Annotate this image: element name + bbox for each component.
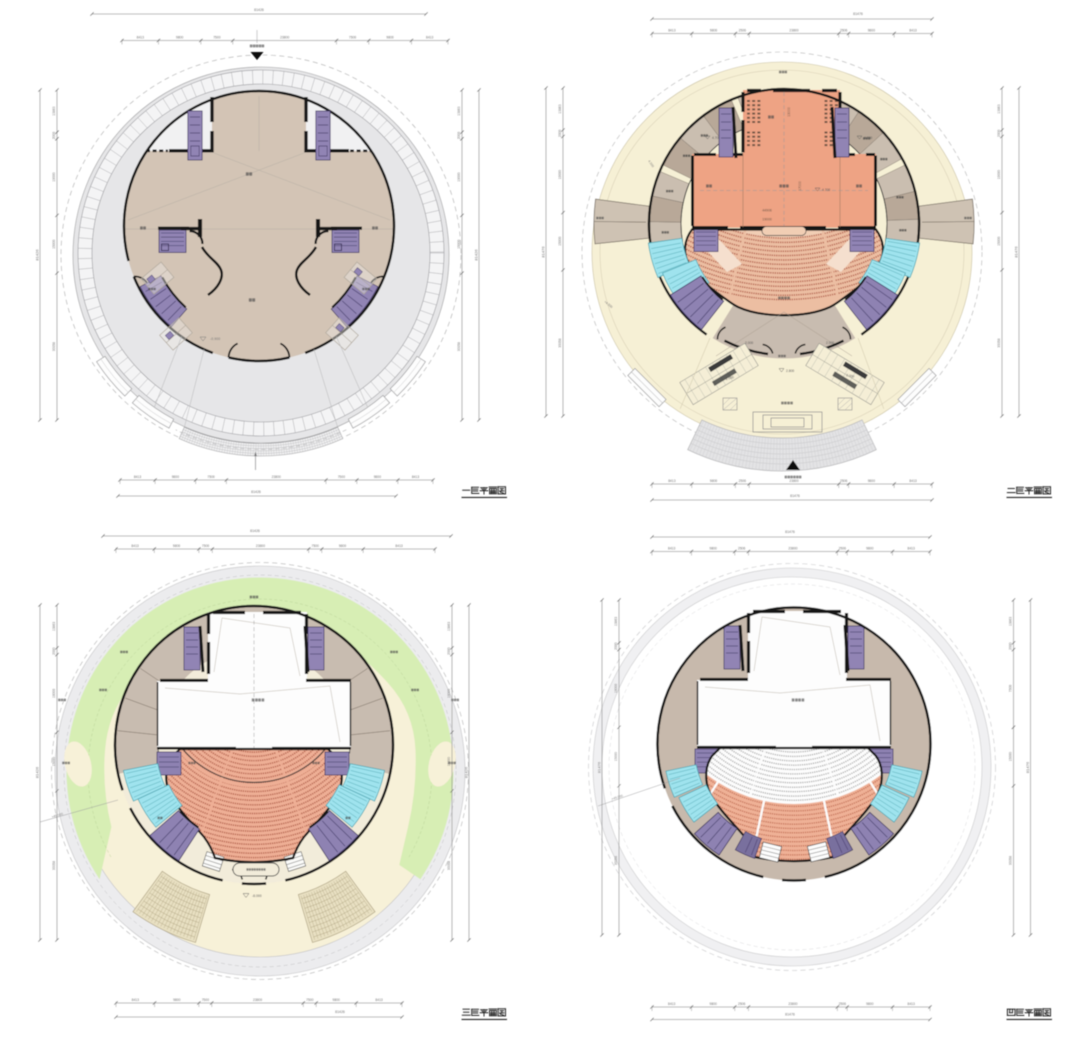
svg-text:7500: 7500 <box>207 475 215 479</box>
svg-text:7500: 7500 <box>202 998 210 1002</box>
svg-text:2000: 2000 <box>558 129 562 137</box>
svg-text:2506: 2506 <box>839 1002 847 1006</box>
svg-text:8413: 8413 <box>134 475 142 479</box>
svg-text:15000: 15000 <box>558 237 562 246</box>
svg-text:81476: 81476 <box>785 1013 795 1017</box>
svg-text:8413: 8413 <box>131 544 139 548</box>
svg-text:81426: 81426 <box>251 490 261 494</box>
svg-text:15000: 15000 <box>614 752 618 761</box>
svg-text:2.000: 2.000 <box>826 341 834 345</box>
svg-text:9800: 9800 <box>386 36 394 40</box>
svg-text:19000: 19000 <box>457 172 461 181</box>
svg-text:13863: 13863 <box>52 106 56 115</box>
svg-text:2000: 2000 <box>614 642 618 650</box>
svg-text:9800: 9800 <box>710 479 718 483</box>
svg-text:9800: 9800 <box>710 547 718 551</box>
svg-text:8413: 8413 <box>909 479 917 483</box>
svg-text:7500: 7500 <box>213 36 221 40</box>
svg-text:30358: 30358 <box>457 342 461 351</box>
svg-text:4.700: 4.700 <box>822 188 830 192</box>
svg-text:8413: 8413 <box>668 29 676 33</box>
svg-text:-8.000: -8.000 <box>252 894 262 898</box>
svg-text:9800: 9800 <box>176 36 184 40</box>
svg-text:23800: 23800 <box>280 36 289 40</box>
svg-text:23800: 23800 <box>272 475 281 479</box>
svg-text:8413: 8413 <box>395 544 403 548</box>
svg-text:81476: 81476 <box>790 494 800 498</box>
svg-text:81426: 81426 <box>35 249 40 261</box>
svg-text:23800: 23800 <box>789 29 798 33</box>
svg-text:19000: 19000 <box>762 218 772 222</box>
svg-text:8413: 8413 <box>137 36 145 40</box>
svg-text:7500: 7500 <box>338 475 346 479</box>
svg-text:7500: 7500 <box>1009 685 1013 693</box>
svg-text:2000: 2000 <box>1009 642 1013 650</box>
svg-text:9800: 9800 <box>173 544 181 548</box>
svg-text:30358: 30358 <box>1009 856 1013 865</box>
svg-text:8413: 8413 <box>668 479 676 483</box>
svg-text:23800: 23800 <box>788 1002 797 1006</box>
svg-text:81476: 81476 <box>1014 246 1019 258</box>
svg-text:2000: 2000 <box>52 647 56 655</box>
svg-text:9800: 9800 <box>172 475 180 479</box>
svg-text:9800: 9800 <box>374 475 382 479</box>
svg-text:7500: 7500 <box>306 998 314 1002</box>
svg-text:2506: 2506 <box>739 479 747 483</box>
svg-text:81476: 81476 <box>597 761 602 773</box>
svg-text:8413: 8413 <box>426 36 434 40</box>
svg-text:30358: 30358 <box>558 338 562 347</box>
svg-text:15000: 15000 <box>457 240 461 249</box>
svg-text:44906: 44906 <box>762 209 772 213</box>
svg-text:9800: 9800 <box>710 29 718 33</box>
svg-text:23800: 23800 <box>253 998 262 1002</box>
svg-text:15000: 15000 <box>52 757 56 766</box>
svg-text:8413: 8413 <box>908 1002 916 1006</box>
svg-text:19000: 19000 <box>52 172 56 181</box>
svg-text:17000: 17000 <box>798 181 802 191</box>
svg-text:9800: 9800 <box>173 998 181 1002</box>
svg-text:15000: 15000 <box>447 757 451 766</box>
svg-text:9800: 9800 <box>710 1002 718 1006</box>
svg-text:81426: 81426 <box>254 8 264 12</box>
svg-text:8413: 8413 <box>668 547 676 551</box>
svg-text:2000: 2000 <box>52 132 56 140</box>
svg-text:30358: 30358 <box>52 861 56 870</box>
svg-text:13863: 13863 <box>447 622 451 631</box>
svg-text:15000: 15000 <box>1009 752 1013 761</box>
svg-text:13863: 13863 <box>457 106 461 115</box>
svg-text:81426: 81426 <box>474 249 479 261</box>
svg-text:9800: 9800 <box>333 998 341 1002</box>
svg-text:8413: 8413 <box>375 998 383 1002</box>
svg-text:9800: 9800 <box>339 544 347 548</box>
svg-text:9800: 9800 <box>866 547 874 551</box>
svg-text:81476: 81476 <box>853 12 863 16</box>
svg-text:23800: 23800 <box>789 479 798 483</box>
svg-text:19000: 19000 <box>614 684 618 693</box>
svg-text:9800: 9800 <box>868 479 876 483</box>
svg-text:30358: 30358 <box>447 861 451 870</box>
svg-text:81476: 81476 <box>1025 761 1030 773</box>
svg-text:7500: 7500 <box>202 544 210 548</box>
svg-text:2.800: 2.800 <box>786 369 794 373</box>
svg-text:81476: 81476 <box>785 530 795 534</box>
svg-text:81476: 81476 <box>541 246 546 258</box>
svg-text:30358: 30358 <box>997 338 1001 347</box>
svg-text:2000: 2000 <box>447 647 451 655</box>
svg-text:23800: 23800 <box>788 547 797 551</box>
svg-text:19000: 19000 <box>558 170 562 179</box>
svg-text:19000: 19000 <box>997 170 1001 179</box>
svg-text:13863: 13863 <box>614 617 618 626</box>
svg-text:13863: 13863 <box>52 622 56 631</box>
svg-text:13863: 13863 <box>558 104 562 113</box>
svg-text:30358: 30358 <box>52 342 56 351</box>
svg-text:30358: 30358 <box>614 856 618 865</box>
svg-text:2506: 2506 <box>839 547 847 551</box>
svg-text:2000: 2000 <box>997 129 1001 137</box>
svg-text:81426: 81426 <box>335 1010 345 1014</box>
svg-text:2.000: 2.000 <box>745 341 753 345</box>
svg-text:13863: 13863 <box>997 104 1001 113</box>
svg-text:2000: 2000 <box>457 132 461 140</box>
svg-text:8413: 8413 <box>412 475 420 479</box>
svg-text:7500: 7500 <box>312 544 320 548</box>
svg-text:81426: 81426 <box>35 766 40 778</box>
svg-text:4.700: 4.700 <box>864 136 872 140</box>
svg-text:9800: 9800 <box>866 1002 874 1006</box>
svg-text:-0.900: -0.900 <box>210 337 220 341</box>
svg-text:2506: 2506 <box>739 29 747 33</box>
svg-text:8413: 8413 <box>668 1002 676 1006</box>
svg-text:7500: 7500 <box>349 36 357 40</box>
svg-text:8413: 8413 <box>909 29 917 33</box>
svg-text:23800: 23800 <box>256 544 265 548</box>
svg-text:19000: 19000 <box>447 689 451 698</box>
svg-text:9800: 9800 <box>868 29 876 33</box>
svg-text:81426: 81426 <box>250 529 260 533</box>
svg-text:15000: 15000 <box>997 237 1001 246</box>
svg-text:2506: 2506 <box>840 29 848 33</box>
svg-text:13000: 13000 <box>787 107 791 117</box>
svg-text:15000: 15000 <box>52 240 56 249</box>
svg-text:2506: 2506 <box>738 547 746 551</box>
svg-text:2506: 2506 <box>738 1002 746 1006</box>
svg-text:81426: 81426 <box>464 766 469 778</box>
svg-text:19000: 19000 <box>52 689 56 698</box>
svg-text:8413: 8413 <box>908 547 916 551</box>
svg-text:8413: 8413 <box>132 998 140 1002</box>
svg-text:2506: 2506 <box>840 479 848 483</box>
svg-text:13863: 13863 <box>1009 617 1013 626</box>
